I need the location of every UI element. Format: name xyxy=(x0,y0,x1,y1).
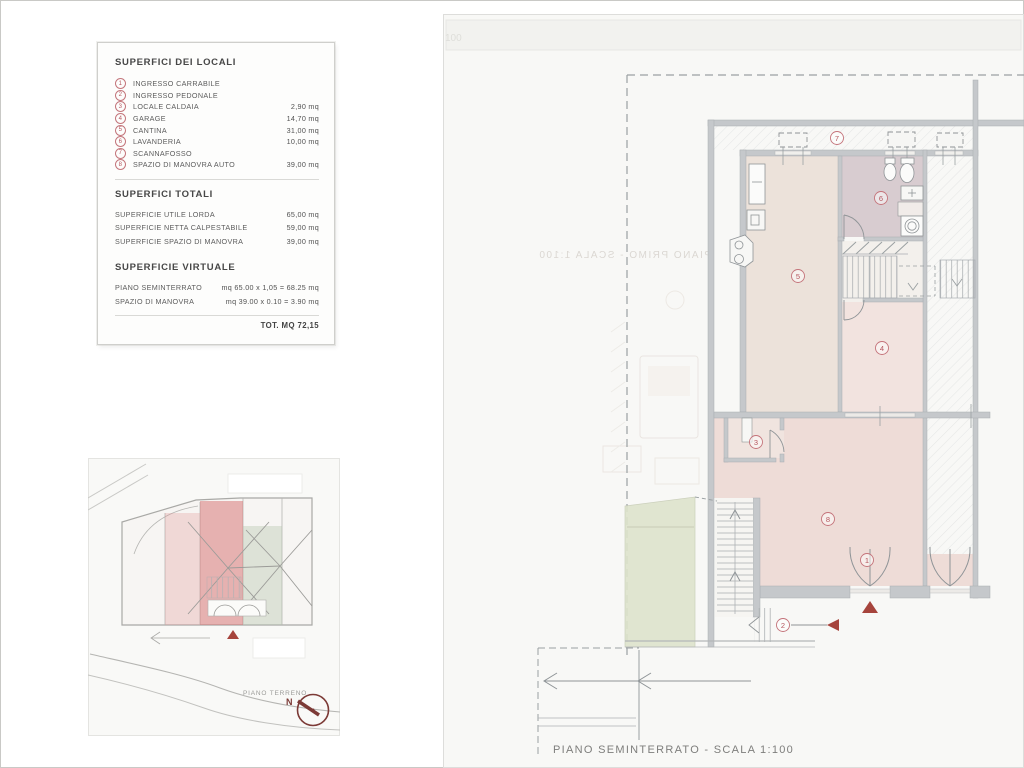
legend-item-row: 7 SCANNAFOSSO xyxy=(115,148,319,160)
room-number-badge: 4 xyxy=(876,342,889,355)
legend-title: SUPERFICI DEI LOCALI xyxy=(115,57,319,68)
legend-divider xyxy=(115,315,319,316)
room-garage-fill xyxy=(842,302,923,412)
svg-text:7: 7 xyxy=(835,134,839,143)
scan-corner-mark: 100 xyxy=(445,33,462,44)
svg-text:1: 1 xyxy=(865,556,869,565)
terrace xyxy=(208,600,266,616)
room-number-badge: 7 xyxy=(115,148,126,159)
scan-top-band xyxy=(446,20,1021,50)
bidet-icon xyxy=(884,164,896,181)
surface-legend-card: SUPERFICI DEI LOCALI 1 INGRESSO CARRABIL… xyxy=(97,42,335,345)
electrical-panel-icon xyxy=(749,164,765,204)
room-label: INGRESSO PEDONALE xyxy=(133,91,218,100)
room-label: SPAZIO DI MANOVRA AUTO xyxy=(133,160,235,169)
blanked-label-box xyxy=(253,638,305,658)
totals-row: SUPERFICIE NETTA CALPESTABILE 59,00 mq xyxy=(115,221,319,234)
totals-value: 59,00 mq xyxy=(287,223,319,232)
room-label: LAVANDERIA xyxy=(133,137,181,146)
virtual-row: SPAZIO DI MANOVRA mq 39.00 x 0.10 = 3.90… xyxy=(115,295,319,309)
svg-text:4: 4 xyxy=(880,344,884,353)
room-number-badge: 2 xyxy=(115,90,126,101)
room-number-badge: 1 xyxy=(115,78,126,89)
site-plan: PIANO TERRENO N xyxy=(88,458,340,736)
room-number-badge: 5 xyxy=(115,125,126,136)
room-label: CANTINA xyxy=(133,126,167,135)
legend-item-row: 2 INGRESSO PEDONALE xyxy=(115,90,319,102)
north-label: N xyxy=(286,697,293,707)
room-label: GARAGE xyxy=(133,114,166,123)
room-number-badge: 3 xyxy=(115,101,126,112)
totals-title: SUPERFICI TOTALI xyxy=(115,189,319,200)
room-number-badge: 6 xyxy=(875,192,888,205)
room-number-badge: 3 xyxy=(750,436,763,449)
totals-value: 39,00 mq xyxy=(287,237,319,246)
room-area-value: 39,00 mq xyxy=(287,160,319,169)
totals-label: SUPERFICIE UTILE LORDA xyxy=(115,210,215,219)
site-plan-caption: PIANO TERRENO xyxy=(243,690,307,697)
room-number-badge: 4 xyxy=(115,113,126,124)
virtual-value: mq 39.00 x 0.10 = 3.90 mq xyxy=(226,297,319,306)
room-number-badge: 1 xyxy=(861,554,874,567)
totals-row: SUPERFICIE SPAZIO DI MANOVRA 39,00 mq xyxy=(115,235,319,248)
boiler-unit-icon xyxy=(730,235,753,267)
legend-item-row: 4 GARAGE 14,70 mq xyxy=(115,113,319,125)
shaft-box-icon xyxy=(747,210,765,230)
legend-item-row: 1 INGRESSO CARRABILE xyxy=(115,78,319,90)
scanned-plan-sheet: SUPERFICI DEI LOCALI 1 INGRESSO CARRABIL… xyxy=(0,0,1024,768)
legend-item-row: 8 SPAZIO DI MANOVRA AUTO 39,00 mq xyxy=(115,159,319,171)
totals-label: SUPERFICIE NETTA CALPESTABILE xyxy=(115,223,248,232)
virtual-label: SPAZIO DI MANOVRA xyxy=(115,297,194,306)
room-area-value: 31,00 mq xyxy=(287,126,319,135)
legend-divider xyxy=(115,179,319,180)
legend-item-row: 3 LOCALE CALDAIA 2,90 mq xyxy=(115,101,319,113)
svg-text:6: 6 xyxy=(879,194,883,203)
room-label: SCANNAFOSSO xyxy=(133,149,192,158)
virtual-title: SUPERFICIE VIRTUALE xyxy=(115,262,319,273)
toilet-icon xyxy=(900,164,914,183)
garden-strip xyxy=(625,497,695,647)
totals-row: SUPERFICIE UTILE LORDA 65,00 mq xyxy=(115,208,319,221)
room-number-badge: 2 xyxy=(777,619,790,632)
svg-text:2: 2 xyxy=(781,621,785,630)
side-stair-treads xyxy=(940,260,975,298)
room-number-badge: 5 xyxy=(792,270,805,283)
totals-value: 65,00 mq xyxy=(287,210,319,219)
room-number-badge: 7 xyxy=(831,132,844,145)
room-label: LOCALE CALDAIA xyxy=(133,102,199,111)
room-label: INGRESSO CARRABILE xyxy=(133,79,220,88)
entrance-steps xyxy=(754,608,773,642)
svg-text:3: 3 xyxy=(754,438,758,447)
room-number-badge: 6 xyxy=(115,136,126,147)
scannafosso-hatch-right xyxy=(927,150,973,554)
totals-label: SUPERFICIE SPAZIO DI MANOVRA xyxy=(115,237,243,246)
floor-plan-caption: PIANO SEMINTERRATO - SCALA 1:100 xyxy=(553,744,794,756)
bleed-mirrored-caption: PIANO PRIMO - SCALA 1:100 xyxy=(538,250,711,261)
legend-item-row: 6 LAVANDERIA 10,00 mq xyxy=(115,136,319,148)
virtual-value: mq 65.00 x 1,05 = 68.25 mq xyxy=(221,283,319,292)
roof-stair-treads xyxy=(207,577,241,598)
virtual-label: PIANO SEMINTERRATO xyxy=(115,283,202,292)
legend-item-row: 5 CANTINA 31,00 mq xyxy=(115,124,319,136)
svg-text:8: 8 xyxy=(826,515,830,524)
room-area-value: 2,90 mq xyxy=(291,102,319,111)
room-area-value: 14,70 mq xyxy=(287,114,319,123)
grand-total: TOT. MQ 72,15 xyxy=(115,321,319,330)
room-number-badge: 8 xyxy=(822,513,835,526)
blanked-label-box xyxy=(228,474,302,493)
room-number-badge: 8 xyxy=(115,159,126,170)
svg-text:5: 5 xyxy=(796,272,800,281)
virtual-row: PIANO SEMINTERRATO mq 65.00 x 1,05 = 68.… xyxy=(115,281,319,295)
room-area-value: 10,00 mq xyxy=(287,137,319,146)
basement-floor-plan: 100 PIANO PRIMO - SCALA 1:100 xyxy=(443,14,1024,768)
